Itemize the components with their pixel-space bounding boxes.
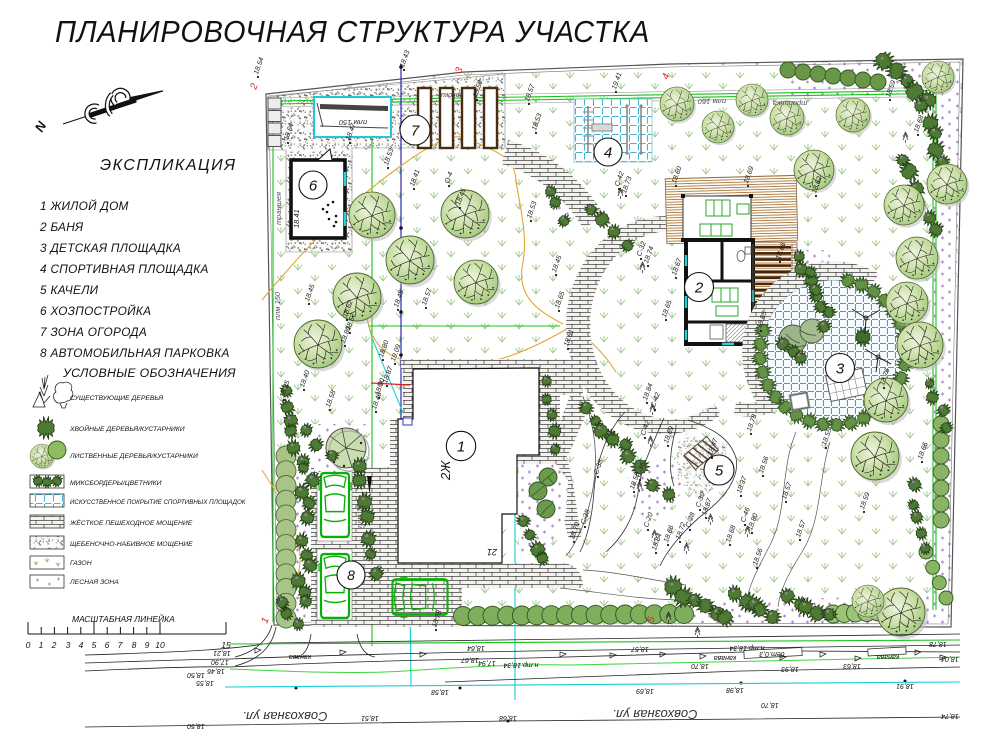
svg-text:ХВОЙНЫЕ ДЕРЕВЬЯ/КУСТАРНИКИ: ХВОЙНЫЕ ДЕРЕВЬЯ/КУСТАРНИКИ bbox=[69, 424, 185, 433]
svg-text:21: 21 bbox=[487, 547, 498, 557]
svg-text:2: 2 bbox=[248, 82, 261, 92]
svg-text:ЛИСТВЕННЫЕ ДЕРЕВЬЯ/КУСТАРНИКИ: ЛИСТВЕННЫЕ ДЕРЕВЬЯ/КУСТАРНИКИ bbox=[69, 453, 198, 460]
svg-text:СУЩЕСТВУЮЩИЕ ДЕРЕВЬЯ: СУЩЕСТВУЮЩИЕ ДЕРЕВЬЯ bbox=[70, 395, 164, 402]
svg-text:5 КАЧЕЛИ: 5 КАЧЕЛИ bbox=[40, 283, 99, 297]
svg-text:18,98: 18,98 bbox=[726, 686, 744, 693]
svg-text:18.41: 18.41 bbox=[292, 209, 301, 228]
svg-text:ИСКУССТВЕННОЕ ПОКРЫТИЕ СПОРТИВ: ИСКУССТВЕННОЕ ПОКРЫТИЕ СПОРТИВНЫХ ПЛОЩАД… bbox=[70, 499, 246, 506]
svg-text:5: 5 bbox=[92, 640, 97, 650]
svg-text:ЛЕСНАЯ ЗОНА: ЛЕСНАЯ ЗОНА bbox=[69, 579, 119, 586]
svg-text:18,57: 18,57 bbox=[630, 645, 649, 652]
svg-text:18,69: 18,69 bbox=[636, 687, 654, 694]
svg-text:9: 9 bbox=[145, 640, 150, 650]
svg-text:4 СПОРТИВНАЯ ПЛОЩАДКА: 4 СПОРТИВНАЯ ПЛОЩАДКА bbox=[40, 262, 209, 276]
svg-text:5: 5 bbox=[715, 462, 724, 479]
svg-text:18.54: 18.54 bbox=[253, 57, 266, 76]
svg-text:Совхозная ул.: Совхозная ул. bbox=[612, 707, 697, 722]
svg-text:18,63: 18,63 bbox=[843, 662, 861, 669]
svg-text:4: 4 bbox=[604, 144, 612, 161]
svg-text:8 АВТОМОБИЛЬНАЯ ПАРКОВКА: 8 АВТОМОБИЛЬНАЯ ПАРКОВКА bbox=[40, 346, 230, 360]
svg-text:МИКСБОРДЕРЫ/ЦВЕТНИКИ: МИКСБОРДЕРЫ/ЦВЕТНИКИ bbox=[70, 480, 162, 487]
svg-text:N: N bbox=[32, 118, 50, 134]
svg-text:н.тр.18,34: н.тр.18,34 bbox=[503, 661, 538, 668]
svg-text:1 ЖИЛОЙ ДОМ: 1 ЖИЛОЙ ДОМ bbox=[40, 199, 129, 213]
svg-text:10: 10 bbox=[155, 640, 165, 650]
svg-text:18,51: 18,51 bbox=[361, 714, 379, 721]
svg-text:17,94: 17,94 bbox=[478, 659, 496, 666]
svg-text:1: 1 bbox=[39, 640, 44, 650]
svg-text:УСЛОВНЫЕ ОБОЗНАЧЕНИЯ: УСЛОВНЫЕ ОБОЗНАЧЕНИЯ bbox=[62, 366, 236, 380]
svg-text:2Ж: 2Ж bbox=[438, 460, 453, 481]
svg-text:4: 4 bbox=[79, 640, 84, 650]
svg-text:18,64: 18,64 bbox=[467, 644, 485, 651]
svg-text:канава: канава bbox=[714, 654, 736, 661]
svg-text:ГАЗОН: ГАЗОН bbox=[70, 560, 92, 567]
svg-text:18,91: 18,91 bbox=[896, 682, 914, 689]
svg-text:6: 6 bbox=[309, 177, 318, 194]
svg-text:плм 150: плм 150 bbox=[273, 291, 282, 320]
svg-text:8: 8 bbox=[132, 640, 137, 650]
svg-text:7: 7 bbox=[118, 640, 123, 650]
svg-text:1: 1 bbox=[457, 438, 465, 455]
svg-text:грядки: грядки bbox=[441, 91, 463, 99]
svg-text:ПЛАНИРОВОЧНАЯ СТРУКТУРА УЧАСТК: ПЛАНИРОВОЧНАЯ СТРУКТУРА УЧАСТКА bbox=[55, 14, 650, 49]
svg-text:18,93: 18,93 bbox=[781, 665, 799, 672]
svg-text:6 ХОЗПОСТРОЙКА: 6 ХОЗПОСТРОЙКА bbox=[40, 304, 151, 318]
svg-text:1: 1 bbox=[259, 616, 271, 625]
svg-text:18,58: 18,58 bbox=[431, 688, 449, 695]
svg-text:18,50: 18,50 bbox=[187, 671, 205, 678]
svg-text:6: 6 bbox=[105, 640, 110, 650]
svg-text:2: 2 bbox=[694, 279, 704, 296]
svg-text:7: 7 bbox=[411, 122, 420, 139]
svg-text:18,70: 18,70 bbox=[761, 701, 779, 708]
svg-text:тропинка: тропинка bbox=[773, 99, 808, 108]
svg-text:8: 8 bbox=[347, 567, 355, 583]
svg-text:18,55: 18,55 bbox=[196, 679, 214, 686]
svg-text:ЩЕБЕНОЧНО-НАБИВНОЕ МОЩЕНИЕ: ЩЕБЕНОЧНО-НАБИВНОЕ МОЩЕНИЕ bbox=[70, 541, 193, 548]
svg-text:канава: канава bbox=[877, 653, 899, 660]
svg-text:18,78: 18,78 bbox=[929, 640, 947, 647]
svg-text:3 ДЕТСКАЯ ПЛОЩАДКА: 3 ДЕТСКАЯ ПЛОЩАДКА bbox=[40, 241, 181, 255]
svg-text:Совхозная ул.: Совхозная ул. bbox=[242, 709, 327, 724]
svg-text:18,46: 18,46 bbox=[207, 667, 225, 674]
svg-text:18.43: 18.43 bbox=[399, 50, 412, 69]
svg-text:бет.0,3: бет.0,3 bbox=[759, 650, 784, 658]
svg-text:ЭКСПЛИКАЦИЯ: ЭКСПЛИКАЦИЯ bbox=[100, 157, 237, 174]
svg-text:2: 2 bbox=[51, 640, 57, 650]
svg-text:траншея: траншея bbox=[274, 192, 283, 225]
svg-text:18,74: 18,74 bbox=[941, 712, 959, 719]
svg-text:2 БАНЯ: 2 БАНЯ bbox=[39, 220, 84, 234]
svg-text:18,50: 18,50 bbox=[187, 722, 205, 729]
svg-text:ЖЁСТКОЕ ПЕШЕХОДНОЕ МОЩЕНИЕ: ЖЁСТКОЕ ПЕШЕХОДНОЕ МОЩЕНИЕ bbox=[69, 519, 193, 527]
svg-text:канава: канава bbox=[289, 653, 311, 660]
svg-text:18,68: 18,68 bbox=[499, 714, 517, 721]
svg-text:0: 0 bbox=[26, 640, 31, 650]
svg-text:3: 3 bbox=[66, 640, 71, 650]
svg-text:18,04: 18,04 bbox=[941, 655, 959, 662]
svg-text:7 ЗОНА ОГОРОДА: 7 ЗОНА ОГОРОДА bbox=[40, 325, 147, 339]
svg-text:плм 150: плм 150 bbox=[697, 97, 726, 106]
svg-text:3: 3 bbox=[836, 360, 845, 377]
svg-text:18,21: 18,21 bbox=[213, 649, 231, 656]
svg-text:18,70: 18,70 bbox=[691, 662, 709, 669]
svg-text:18,67: 18,67 bbox=[460, 656, 479, 663]
svg-text:н.тр.18,34: н.тр.18,34 bbox=[729, 644, 764, 651]
svg-text:17,90: 17,90 bbox=[211, 658, 229, 665]
